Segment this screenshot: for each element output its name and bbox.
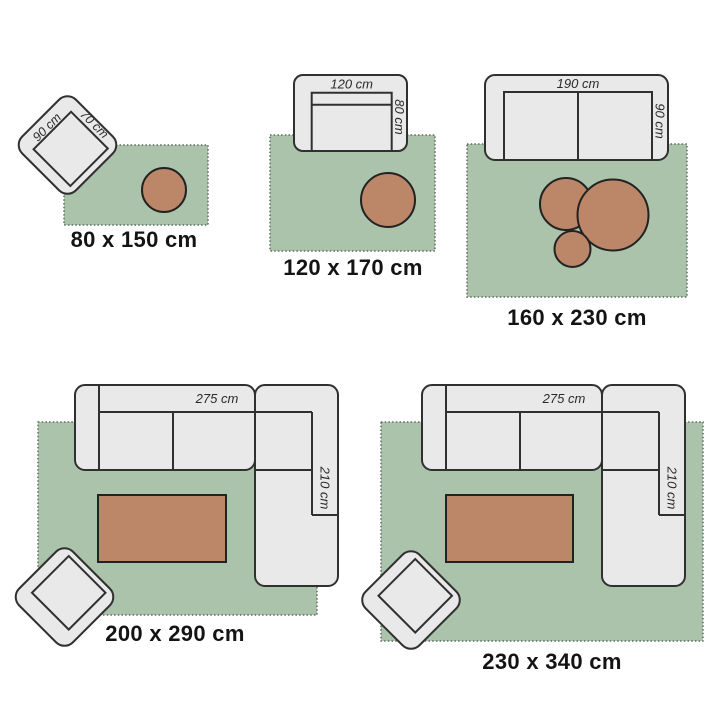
sofa-depth-label: 210 cm — [665, 466, 680, 510]
diagram-200x290: 275 cm 210 cm — [11, 385, 338, 651]
sofa-depth-label: 210 cm — [318, 466, 333, 510]
sofa-width-label: 120 cm — [330, 77, 373, 92]
size-label-200x290: 200 x 290 cm — [65, 621, 285, 647]
coffee-table — [446, 495, 573, 562]
sofa-width-label: 275 cm — [542, 391, 586, 406]
diagram-160x230: 190 cm 90 cm — [467, 75, 687, 297]
size-label-160x230: 160 x 230 cm — [467, 305, 687, 331]
sofa-depth-label: 80 cm — [392, 99, 407, 135]
coffee-table — [98, 495, 226, 562]
size-label-230x340: 230 x 340 cm — [442, 649, 662, 675]
rug-size-guide-graphic: 90 cm 70 cm 120 cm 80 cm 1 — [0, 0, 720, 720]
rug-size-guide: 90 cm 70 cm 120 cm 80 cm 1 — [0, 0, 720, 720]
sofa-width-label: 275 cm — [195, 391, 239, 406]
round-side-table — [361, 173, 415, 227]
sofa-190: 190 cm 90 cm — [485, 75, 668, 160]
diagram-120x170: 120 cm 80 cm — [270, 75, 435, 251]
round-side-table — [142, 168, 186, 212]
sofa-depth-label: 90 cm — [653, 103, 668, 139]
size-label-120x170: 120 x 170 cm — [243, 255, 463, 281]
sofa-width-label: 190 cm — [557, 76, 600, 91]
round-table-small — [555, 231, 591, 267]
diagram-230x340: 275 cm 210 cm — [357, 385, 703, 654]
size-label-80x150: 80 x 150 cm — [24, 227, 244, 253]
sofa-120: 120 cm 80 cm — [294, 75, 407, 151]
diagram-80x150: 90 cm 70 cm — [14, 89, 208, 225]
